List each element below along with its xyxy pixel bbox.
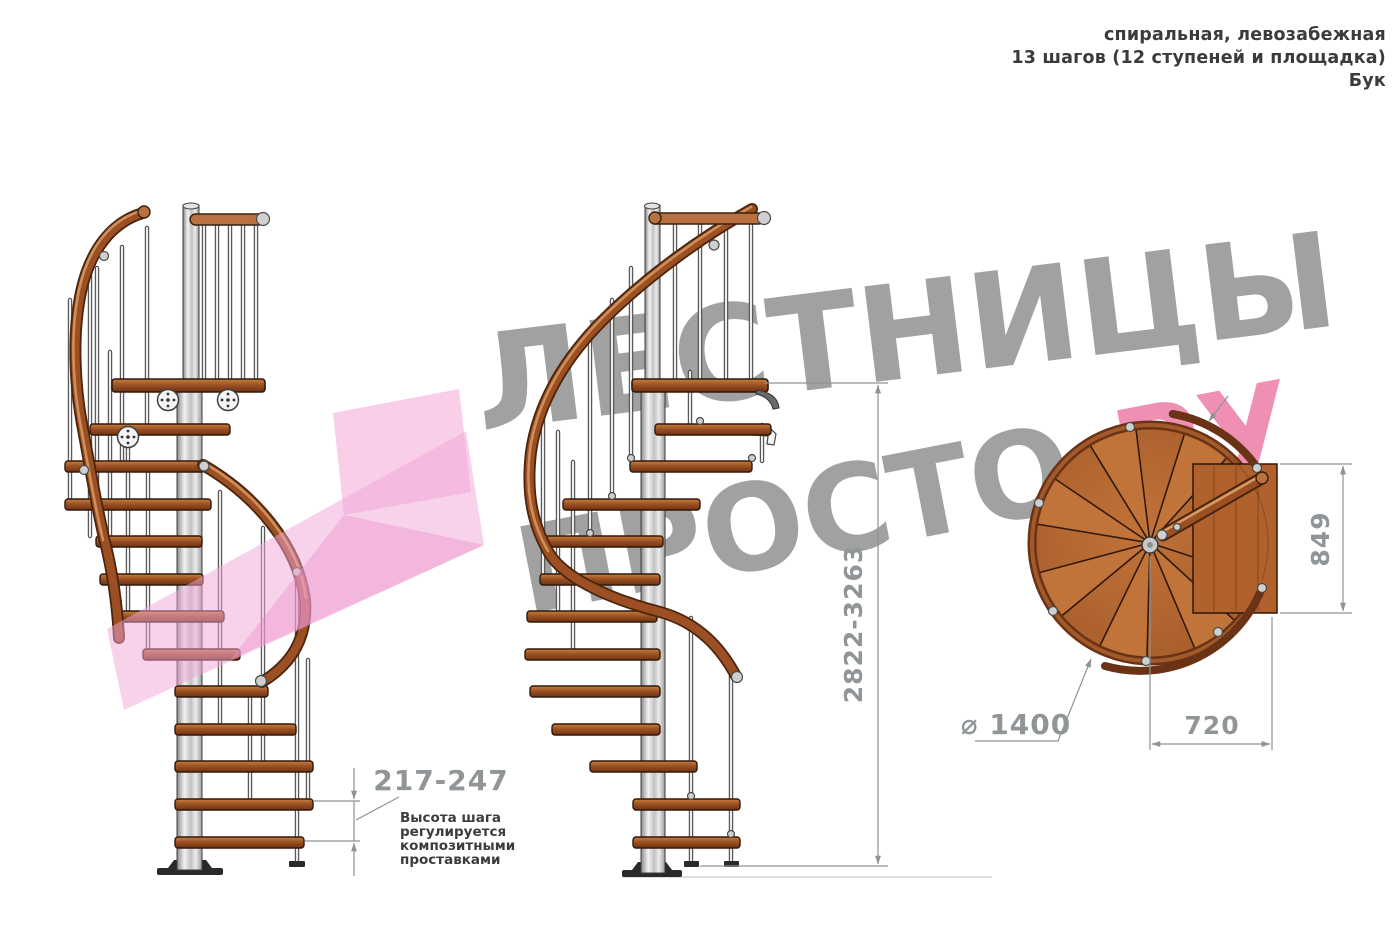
technical-drawing-page: ЛЕСТНИЦЫ ПРОСТО.РУ — [0, 0, 1400, 929]
dimension-step-height: 217-247 Высота шага регулируется компози… — [305, 764, 515, 876]
platform-railing — [190, 213, 270, 226]
spec-steps: 13 шагов (12 ступеней и площадка) — [1011, 47, 1386, 70]
diameter-value: ⌀ 1400 — [961, 708, 1072, 741]
total-height-value: 2822-3263 — [839, 545, 868, 704]
spec-type: спиральная, левозабежная — [1011, 24, 1386, 47]
staircase-drawing: ЛЕСТНИЦЫ ПРОСТО.РУ — [0, 0, 1400, 929]
central-pole — [183, 205, 199, 385]
mounting-plate — [158, 390, 179, 411]
step-height-note: Высота шага регулируется композитными пр… — [400, 810, 515, 868]
svg-text:проставками: проставками — [400, 852, 501, 868]
platform — [112, 379, 265, 392]
platform — [632, 379, 768, 392]
platform-depth-value: 849 — [1306, 511, 1335, 566]
mounting-plate — [218, 390, 239, 411]
dimension-diameter: ⌀ 1400 — [961, 659, 1091, 741]
step-height-value: 217-247 — [373, 764, 509, 797]
mounting-plate — [118, 427, 139, 448]
central-pole — [645, 205, 660, 385]
platform-width-value: 720 — [1184, 711, 1239, 740]
spec-material: Бук — [1011, 70, 1386, 93]
platform-railing — [649, 212, 771, 225]
plan-view — [1032, 414, 1277, 671]
spec-header: спиральная, левозабежная 13 шагов (12 ст… — [1011, 24, 1386, 93]
